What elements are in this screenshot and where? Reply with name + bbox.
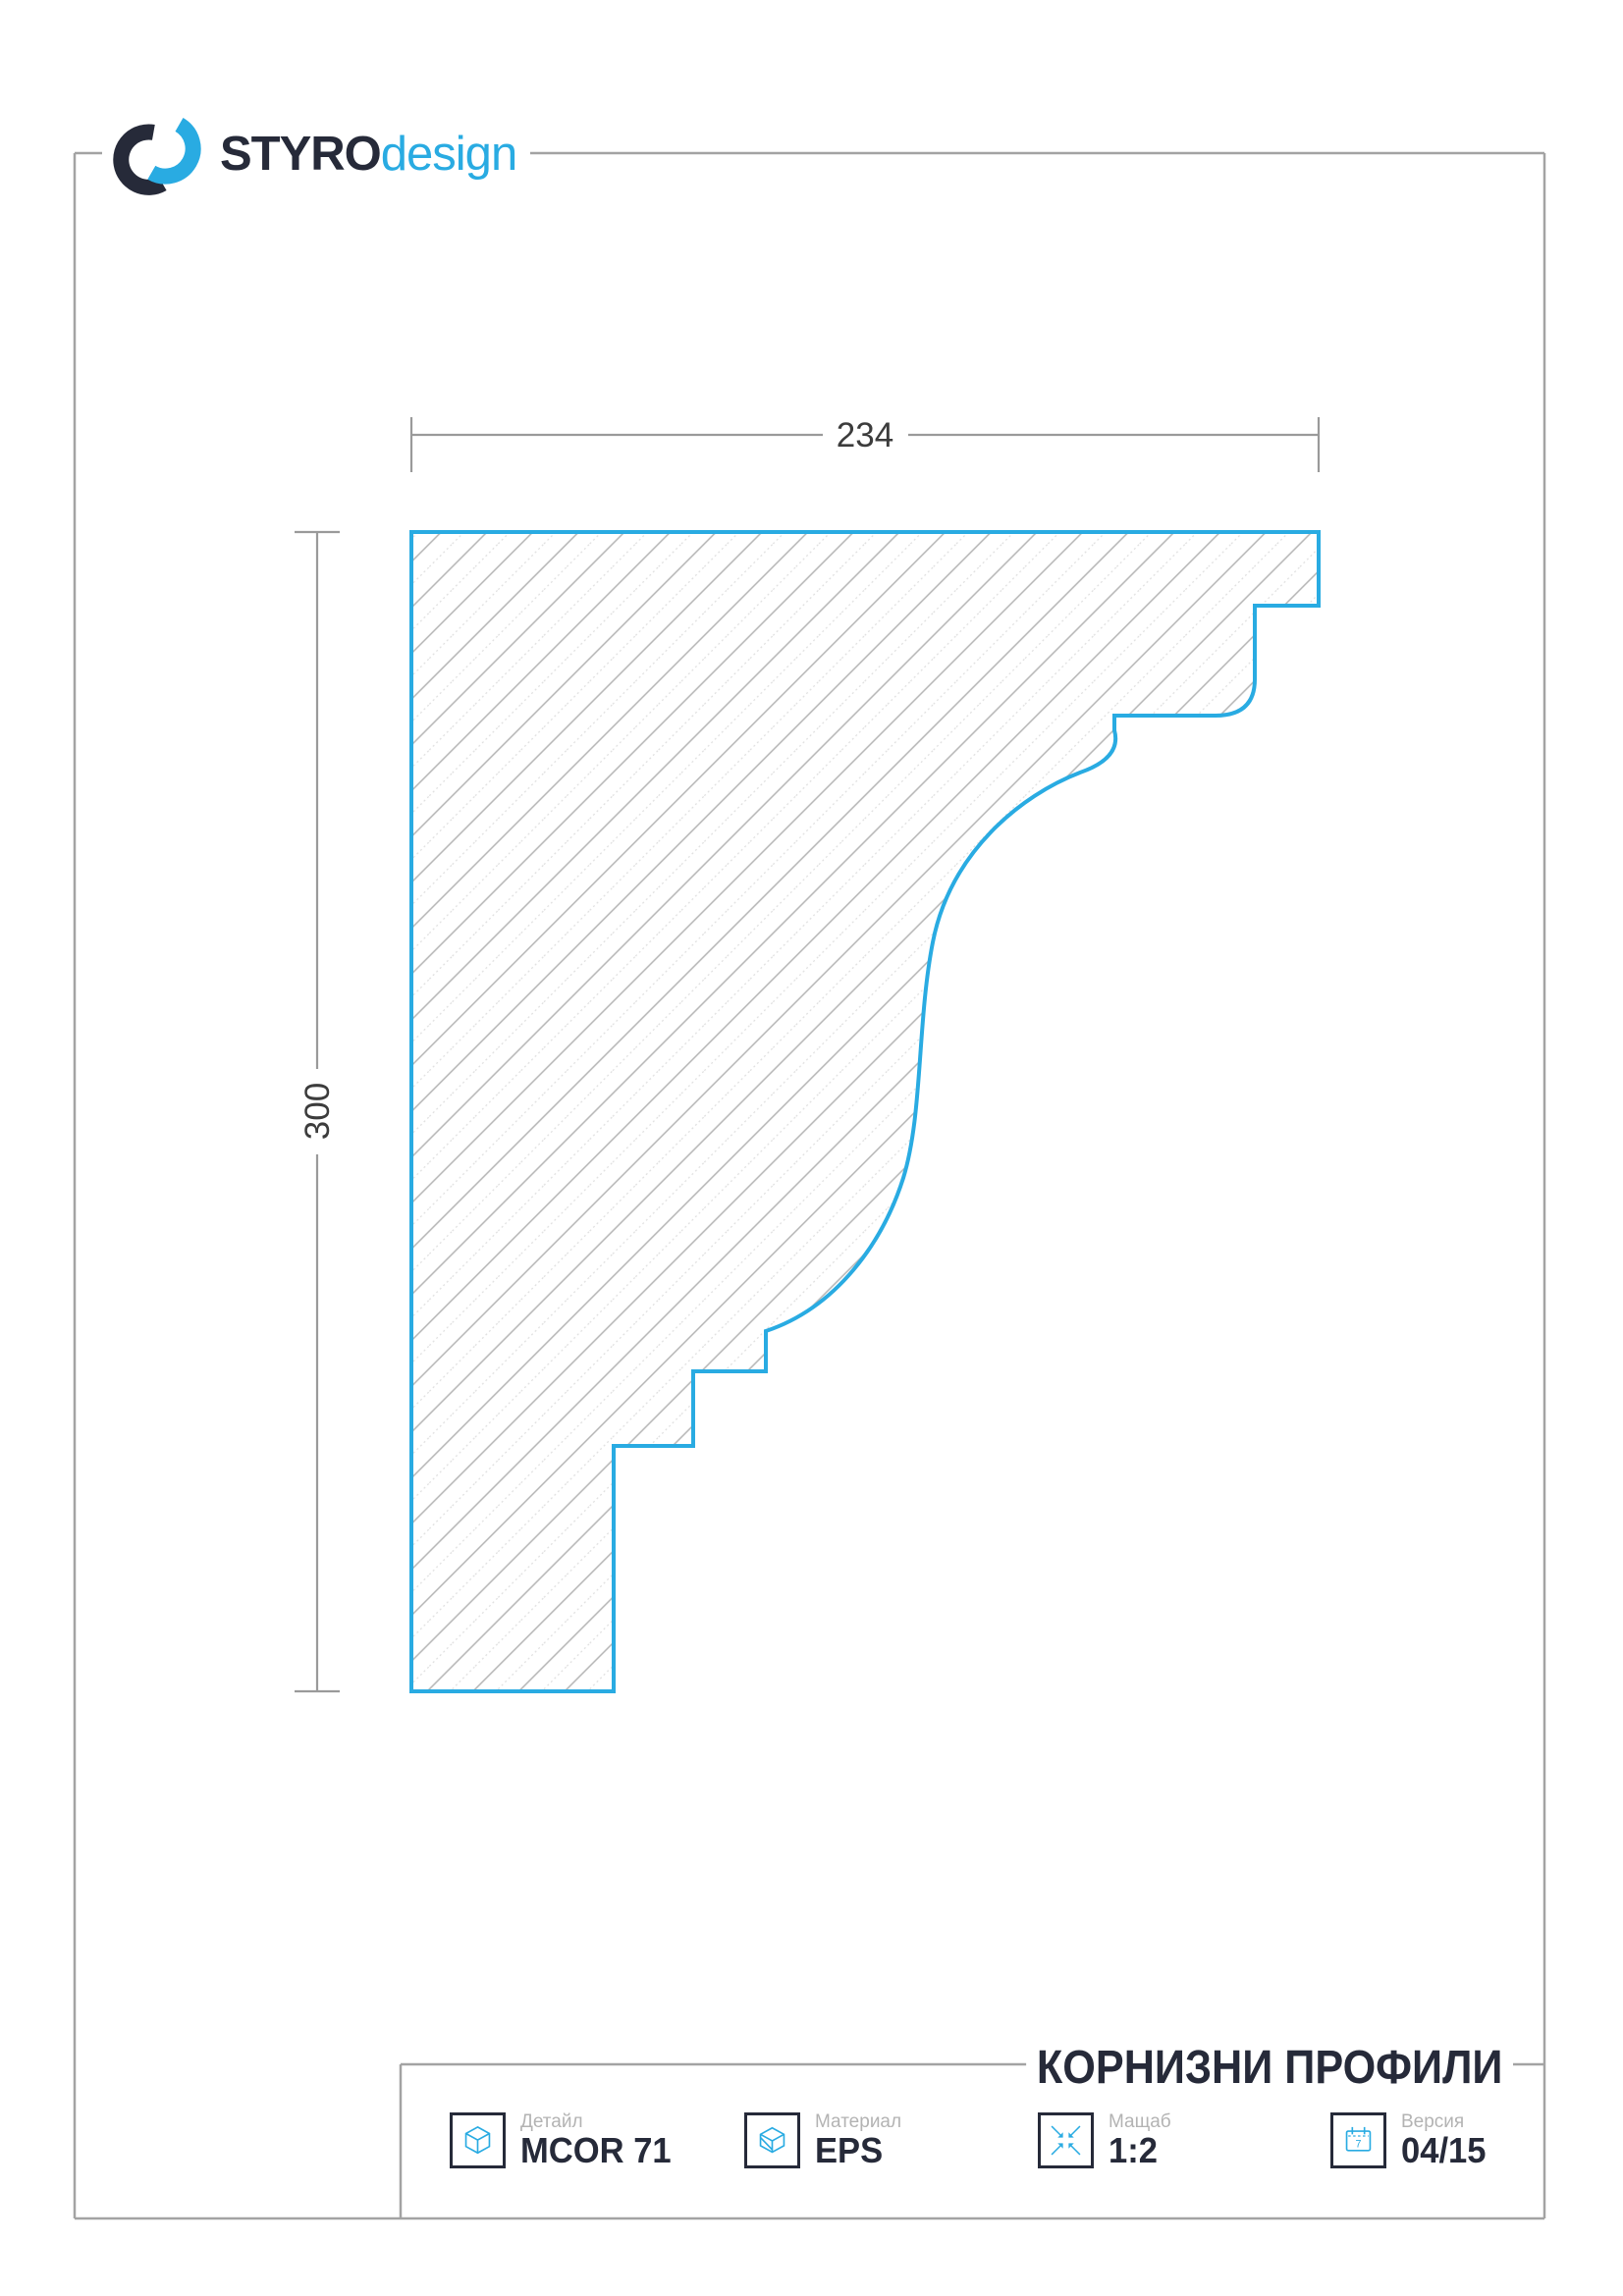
datasheet-page: 234 300 STYROdesign КОРНИЗНИ ПРОФИЛИ bbox=[0, 0, 1623, 2296]
brand-suffix: design bbox=[381, 128, 516, 181]
footer-item-label: Материал bbox=[815, 2112, 901, 2132]
footer-item-label: Версия bbox=[1401, 2112, 1489, 2132]
footer-item-label: Мащаб bbox=[1109, 2112, 1171, 2132]
brand-name: STYRO bbox=[220, 128, 381, 181]
brand-logo: STYROdesign bbox=[102, 102, 530, 206]
technical-drawing: 234 300 bbox=[0, 0, 1623, 2296]
footer-item-value: EPS bbox=[815, 2132, 898, 2169]
calendar-icon: 7 bbox=[1330, 2112, 1386, 2168]
section-title: КОРНИЗНИ ПРОФИЛИ bbox=[1026, 2040, 1513, 2097]
footer-item-version: 7 Версия 04/15 bbox=[1330, 2112, 1489, 2169]
footer-item-label: Детайл bbox=[520, 2112, 677, 2132]
scale-arrows-icon bbox=[1038, 2112, 1094, 2168]
calendar-icon-digit: 7 bbox=[1356, 2139, 1362, 2151]
cornice-profile-shape bbox=[411, 532, 1319, 1691]
dim-height-label: 300 bbox=[298, 1083, 337, 1140]
footer-item-value: 1:2 bbox=[1109, 2132, 1168, 2169]
dim-width-label: 234 bbox=[837, 416, 893, 454]
footer-item-material: Материал EPS bbox=[744, 2112, 901, 2169]
brand-wordmark: STYROdesign bbox=[220, 127, 516, 182]
footer-item-detail: Детайл MCOR 71 bbox=[450, 2112, 677, 2169]
footer-item-value: MCOR 71 bbox=[520, 2132, 672, 2169]
footer-item-value: 04/15 bbox=[1401, 2132, 1486, 2169]
styro-sync-logo-icon bbox=[108, 108, 204, 200]
cube-icon bbox=[450, 2112, 506, 2168]
footer-item-scale: Мащаб 1:2 bbox=[1038, 2112, 1171, 2169]
material-block-icon bbox=[744, 2112, 800, 2168]
